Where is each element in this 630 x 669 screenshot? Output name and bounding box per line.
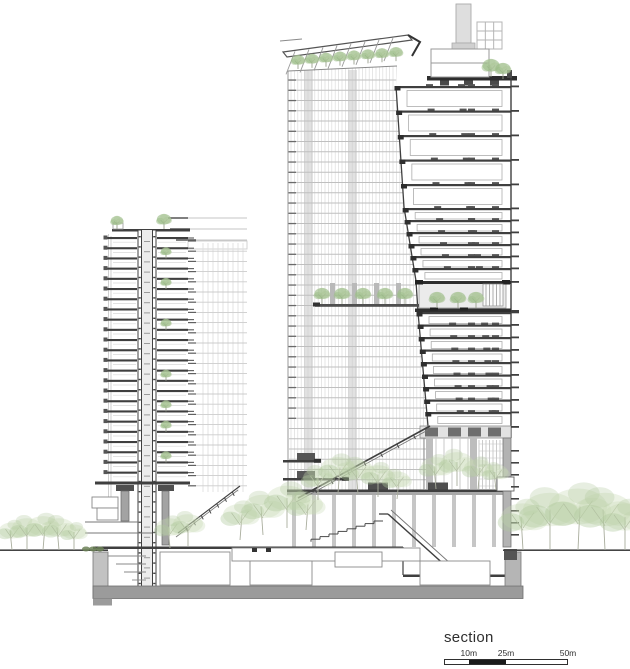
rooftop-plant bbox=[431, 4, 511, 79]
scale-label-25m: 25m bbox=[498, 648, 515, 658]
sky-garden bbox=[415, 280, 519, 312]
ground-trees-mid bbox=[154, 481, 326, 548]
architectural-section-page: section 10m 25m 50m bbox=[0, 0, 630, 669]
scale-label-50m: 50m bbox=[560, 648, 577, 658]
scale-label-10m: 10m bbox=[461, 648, 478, 658]
scale-bar bbox=[444, 659, 568, 665]
section-drawing bbox=[0, 0, 630, 669]
left-tower bbox=[85, 214, 194, 594]
scale-bar-segment bbox=[445, 660, 469, 664]
drawing-title: section bbox=[444, 629, 594, 646]
right-tower bbox=[176, 66, 519, 577]
curtain-wall-mesh bbox=[289, 66, 428, 492]
ground-trees-left bbox=[0, 513, 88, 550]
scale: 10m 25m 50m bbox=[444, 648, 568, 666]
ground-trees-right bbox=[498, 482, 630, 550]
scale-labels: 10m 25m 50m bbox=[444, 648, 568, 658]
title-block: section 10m 25m 50m bbox=[444, 629, 594, 666]
scale-bar-segment bbox=[506, 660, 567, 664]
scale-bar-segment bbox=[469, 660, 506, 664]
